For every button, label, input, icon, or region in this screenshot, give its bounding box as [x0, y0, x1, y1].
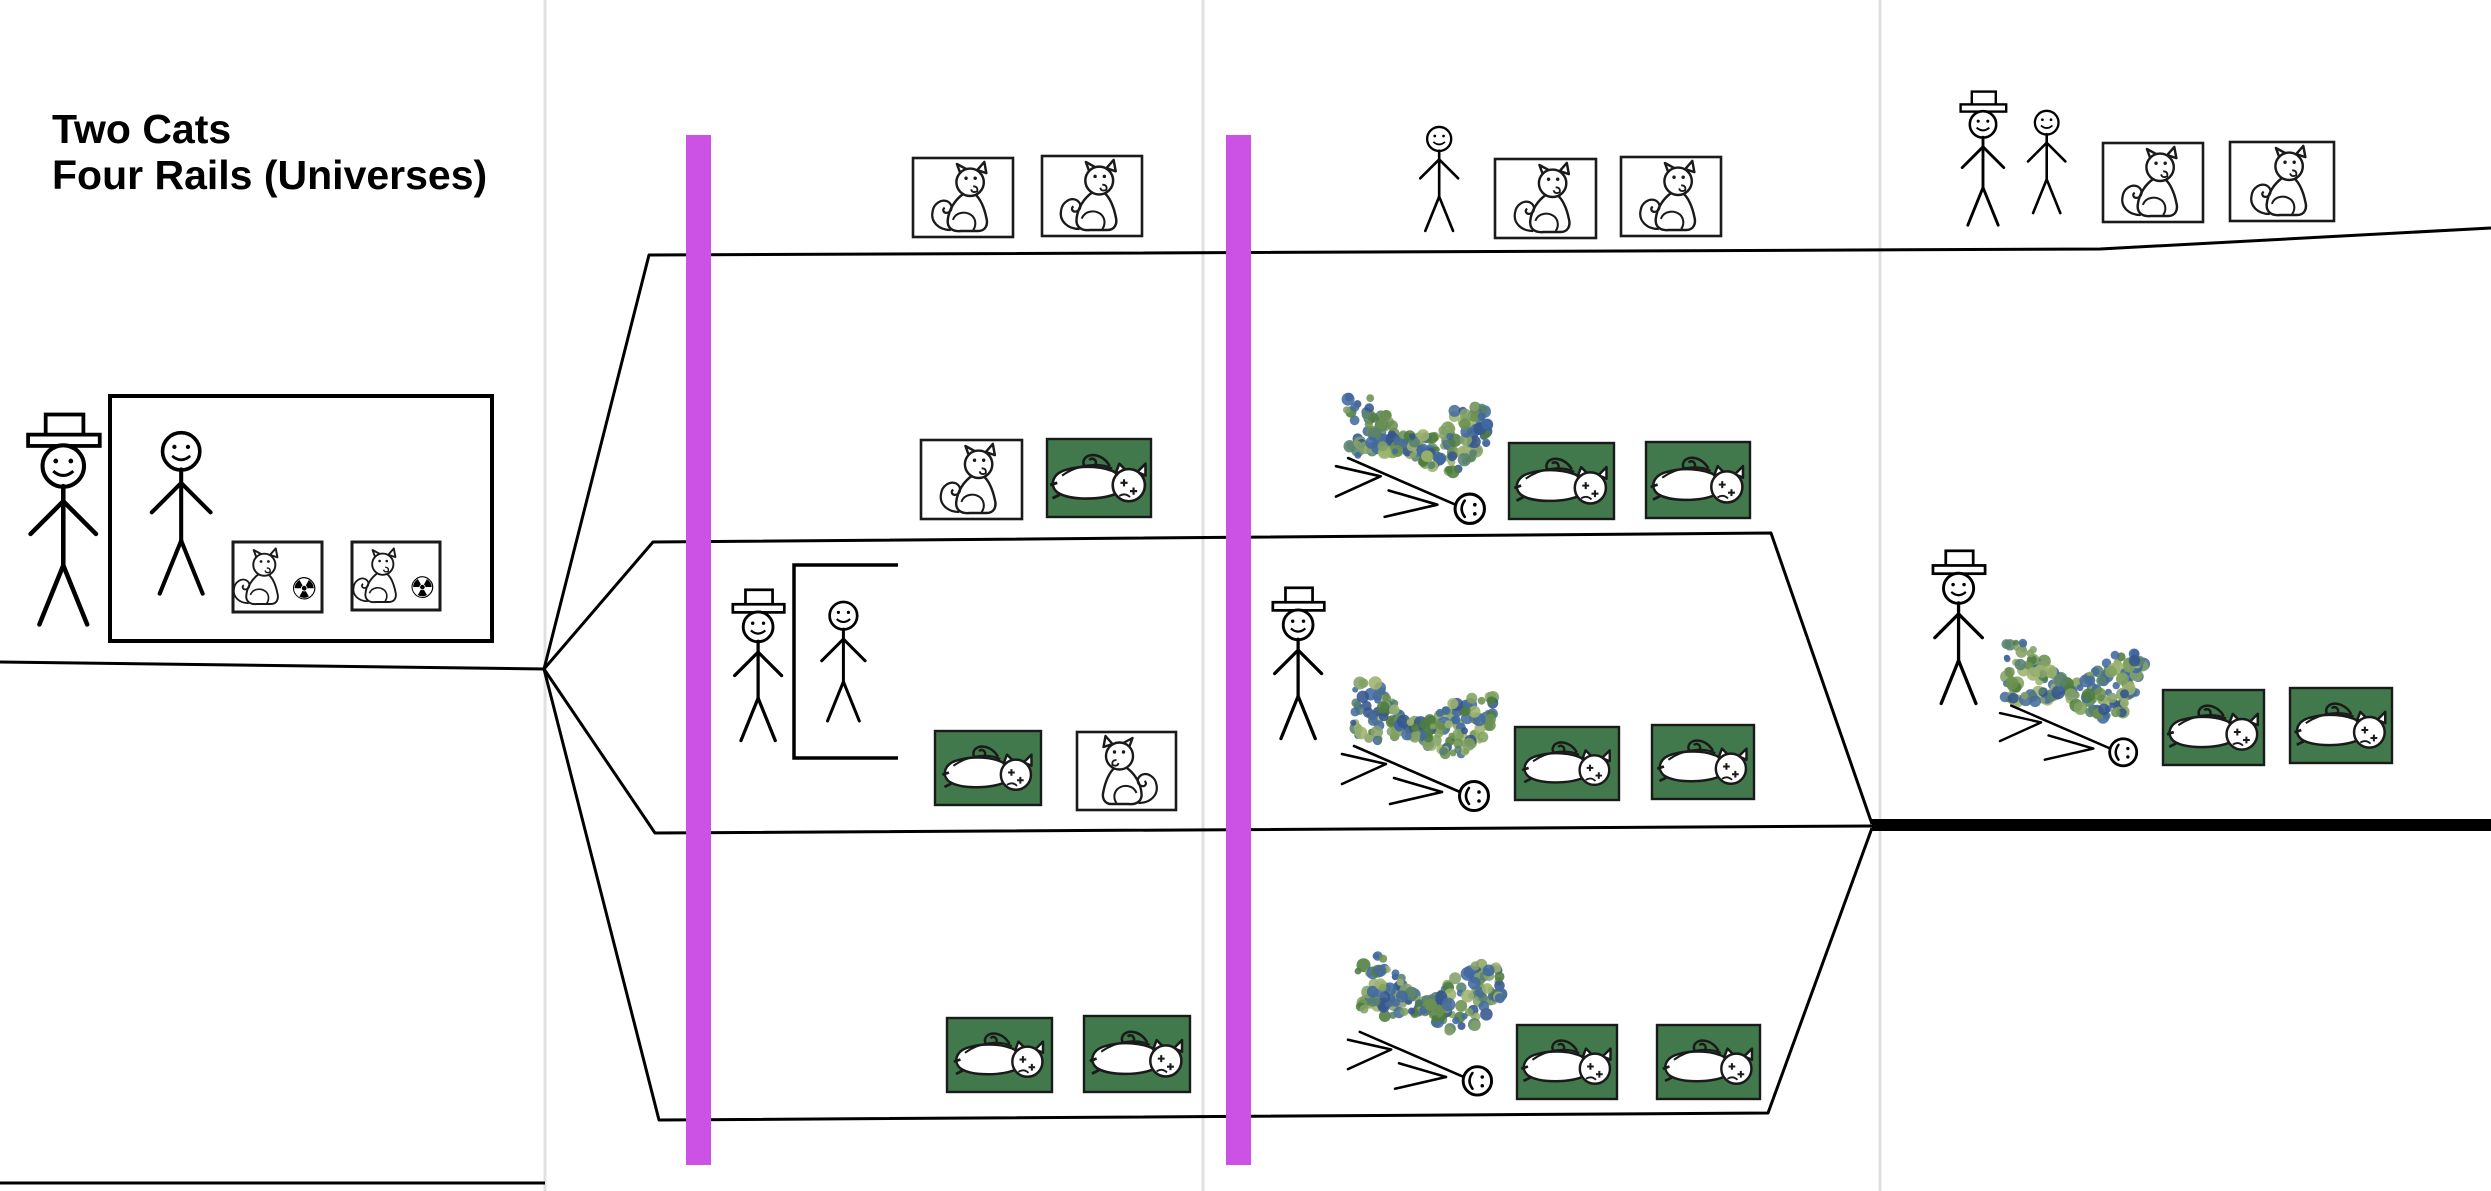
- dead-cat-box: [947, 1018, 1052, 1092]
- observer-panel4-rail3-hat-figure: [1933, 551, 1985, 704]
- observer-with-hat-start-hat-figure: [28, 415, 100, 625]
- dead-cat-box: [1646, 442, 1750, 518]
- alive-cat-box: [2230, 142, 2334, 221]
- friend-in-open-box-rail3-figure: [822, 602, 865, 721]
- observer-with-hat-rail3-hat-figure: [733, 590, 784, 741]
- radiation-icon: ☢: [409, 571, 436, 606]
- friend-panel4-rail1-figure: [2028, 111, 2065, 213]
- dead-cat-box: [1517, 1025, 1617, 1099]
- dead-cat-box: [1657, 1025, 1760, 1099]
- fallen-figure: [1342, 746, 1489, 811]
- friend-in-box-start-figure: [152, 433, 211, 594]
- dead-cat-box: [1515, 727, 1619, 800]
- observer-panel4-rail1-hat-figure: [1961, 92, 2007, 226]
- title-line-1: Two Cats: [52, 106, 487, 152]
- alive-cat-box: [1077, 732, 1176, 810]
- alive-cat-box: [2103, 143, 2203, 222]
- alive-cat-box: [1495, 159, 1596, 238]
- overgrowth-scribble: [1355, 951, 1508, 1035]
- cat-with-radiation-box: ☢: [352, 542, 440, 610]
- cat-with-radiation-box: ☢: [233, 542, 322, 612]
- dead-cat-box: [2290, 688, 2392, 763]
- alive-cat-box: [921, 440, 1022, 519]
- overgrowth-scribble: [1350, 676, 1500, 759]
- dead-cat-box: [1084, 1016, 1190, 1092]
- incoming-worldline: [0, 662, 544, 669]
- observer-panel3-rail3-hat-figure: [1273, 588, 1324, 739]
- merged-worldline: [1872, 819, 2491, 831]
- dead-cat-box: [1047, 439, 1151, 517]
- magenta-barrier-1: [686, 135, 711, 1165]
- alive-cat-box: [1042, 156, 1142, 236]
- friend-panel3-rail1-figure: [1420, 127, 1458, 231]
- title-line-2: Four Rails (Universes): [52, 152, 487, 198]
- magenta-barrier-2: [1226, 135, 1251, 1165]
- fallen-figure: [1348, 1032, 1492, 1095]
- dead-cat-box: [2163, 690, 2264, 765]
- two-cats-four-rails-diagram: ☢☢ Two Cats Four Rails (Universes): [0, 0, 2491, 1191]
- opened-box-bracket: [794, 565, 898, 758]
- dead-cat-box: [1509, 443, 1614, 519]
- dead-cat-box: [935, 731, 1041, 805]
- radiation-icon: ☢: [290, 571, 318, 607]
- alive-cat-box: [1621, 157, 1721, 236]
- alive-cat-box: [913, 158, 1013, 237]
- dead-cat-box: [1652, 725, 1754, 799]
- diagram-title: Two Cats Four Rails (Universes): [52, 106, 487, 199]
